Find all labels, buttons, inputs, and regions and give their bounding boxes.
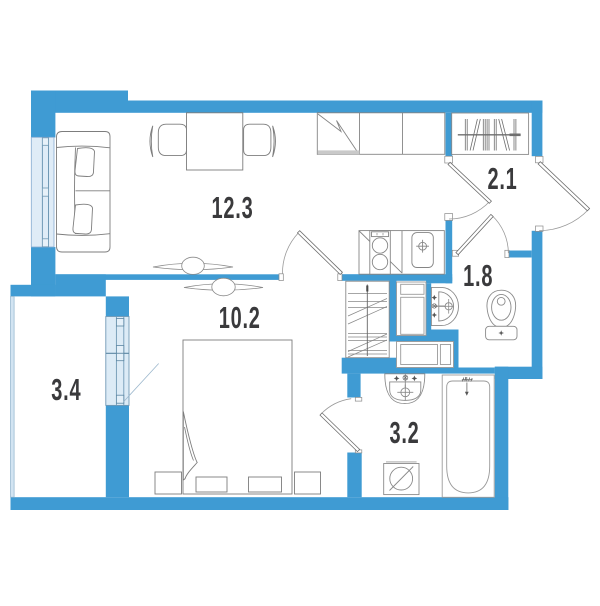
svg-text:10.2: 10.2 (219, 302, 261, 335)
svg-text:3.2: 3.2 (389, 417, 419, 450)
svg-text:3.4: 3.4 (51, 374, 81, 407)
svg-text:2.1: 2.1 (487, 163, 517, 196)
svg-text:12.3: 12.3 (211, 192, 253, 225)
svg-text:1.8: 1.8 (463, 260, 493, 293)
